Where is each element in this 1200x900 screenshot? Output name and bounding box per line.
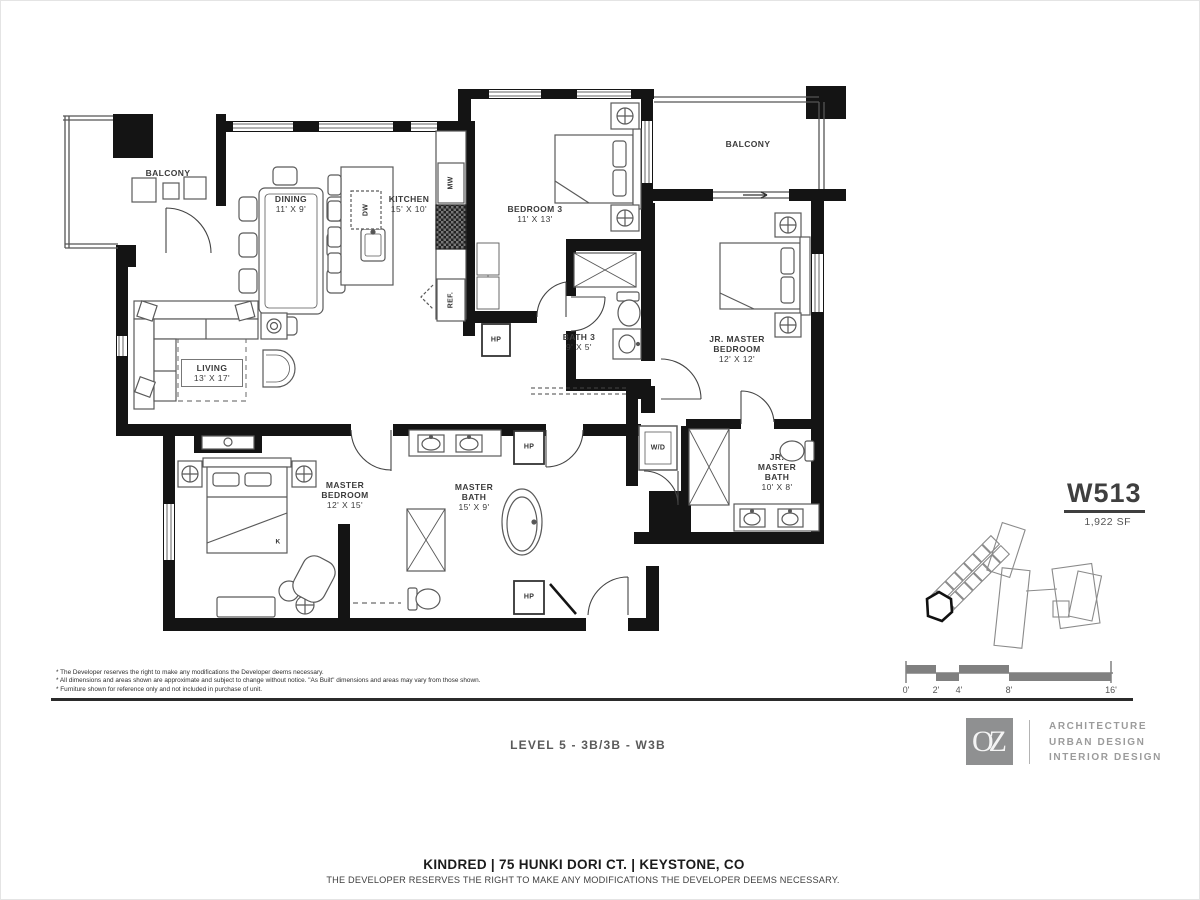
level-caption: LEVEL 5 - 3B/3B - W3B	[448, 738, 728, 752]
room-label-jr-master-bath: JR. MASTER BATH10' X 8'	[752, 452, 802, 492]
service-line: INTERIOR DESIGN	[1049, 750, 1162, 766]
scale-tick-8: 8'	[1006, 685, 1013, 695]
room-label-jr-master-bedroom: JR. MASTER BEDROOM12' X 12'	[708, 334, 766, 364]
brand-services: ARCHITECTURE URBAN DESIGN INTERIOR DESIG…	[1049, 719, 1162, 766]
keyplan-unit-marker	[927, 592, 952, 621]
king-bed-label: K	[276, 539, 281, 546]
room-label-kitchen: KITCHEN15' X 10'	[389, 194, 430, 214]
scale-tick-4: 4'	[956, 685, 963, 695]
refrigerator-label: REF.	[448, 292, 455, 308]
logo-divider	[1029, 720, 1030, 764]
scale-bar	[906, 661, 1113, 683]
room-label-balcony-left: BALCONY	[146, 168, 191, 178]
note-line: * The Developer reserves the right to ma…	[56, 669, 480, 677]
service-line: URBAN DESIGN	[1049, 735, 1162, 751]
floorplan-sheet: BALCONY BALCONY DINING11' X 9' KITCHEN15…	[0, 0, 1200, 900]
scale-tick-2: 2'	[933, 685, 940, 695]
service-line: ARCHITECTURE	[1049, 719, 1162, 735]
room-label-living: LIVING13' X 17'	[181, 359, 243, 387]
floorplan-drawing	[1, 1, 1200, 900]
room-label-bath3: BATH 39' X 5'	[563, 332, 595, 352]
room-label-dining: DINING11' X 9'	[275, 194, 307, 214]
living-furniture	[134, 301, 295, 409]
unit-number: W513	[1064, 478, 1145, 513]
disclaimer-notes: * The Developer reserves the right to ma…	[56, 669, 480, 694]
footer-address: KINDRED | 75 HUNKI DORI CT. | KEYSTONE, …	[1, 857, 1167, 872]
keyplan-drawing	[927, 523, 1102, 649]
hp-units	[482, 324, 544, 614]
unit-area: 1,922 SF	[1021, 516, 1131, 528]
divider-line	[51, 698, 1133, 701]
hp-label-1: HP	[491, 337, 501, 344]
microwave-label: MW	[448, 176, 455, 189]
balcony-left-furniture	[132, 177, 206, 202]
room-label-master-bedroom: MASTER BEDROOM12' X 15'	[312, 480, 378, 510]
note-line: * All dimensions and areas shown are app…	[56, 677, 480, 685]
dishwasher-label: DW	[363, 204, 370, 216]
master-bedroom-furniture	[178, 431, 339, 617]
oz-logo: OZ	[966, 718, 1013, 765]
kitchen-island	[328, 167, 393, 285]
washer-dryer-label: W/D	[651, 445, 666, 452]
jr-master-bed	[720, 213, 810, 337]
room-label-master-bath: MASTER BATH15' X 9'	[446, 482, 502, 512]
scale-tick-0: 0'	[903, 685, 910, 695]
hp-label-2: HP	[524, 444, 534, 451]
scale-tick-16: 16'	[1105, 685, 1117, 695]
kitchen-counter	[421, 131, 466, 321]
room-label-balcony-right: BALCONY	[726, 139, 771, 149]
footer-disclaimer: THE DEVELOPER RESERVES THE RIGHT TO MAKE…	[1, 875, 1165, 885]
room-label-bedroom3: BEDROOM 311' X 13'	[507, 204, 562, 224]
note-line: * Furniture shown for reference only and…	[56, 686, 480, 694]
hp-label-3: HP	[524, 594, 534, 601]
